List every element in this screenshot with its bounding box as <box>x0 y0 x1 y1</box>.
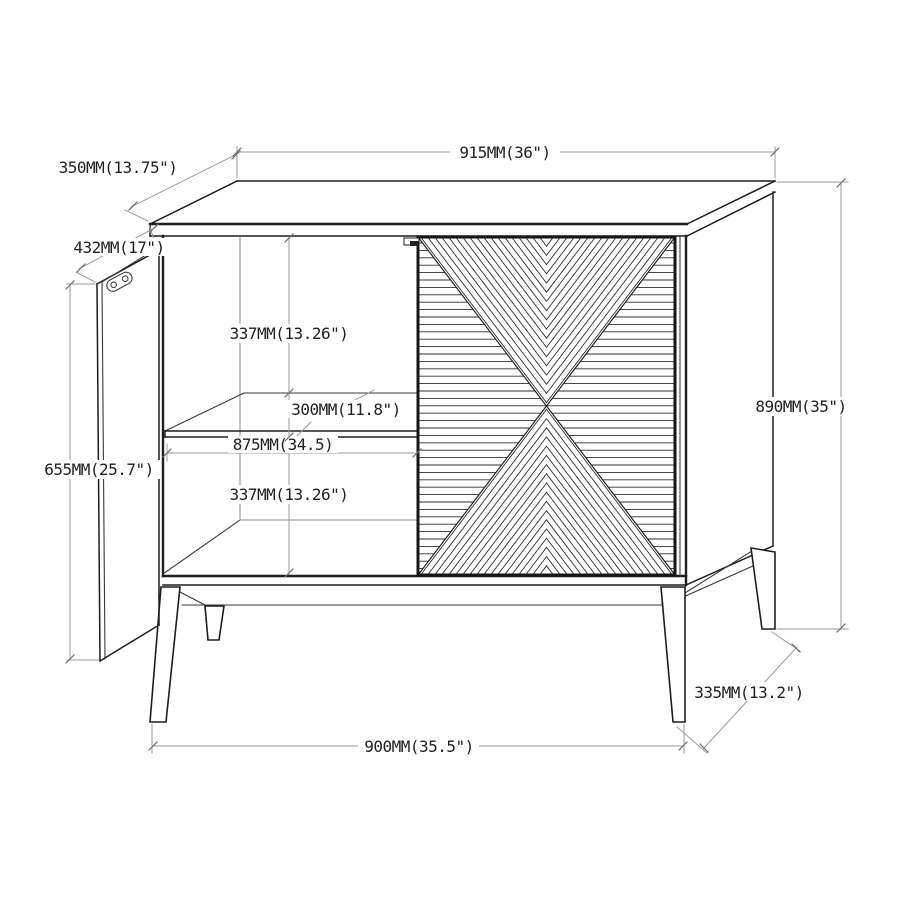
dimension-350: 350MM(13.75") <box>52 154 237 221</box>
cabinet-dimension-diagram: 915MM(36") 350MM(13.75") 432MM(17") 655M… <box>0 0 900 900</box>
open-left-door <box>97 247 159 661</box>
dimension-label-lower-compartment: 337MM(13.26") <box>230 485 349 504</box>
dimension-label-upper-compartment: 337MM(13.26") <box>230 324 349 343</box>
door-hinge <box>105 270 134 293</box>
dimension-875: 875MM(34.5) <box>167 435 418 461</box>
dimension-label-top-width: 915MM(36") <box>459 143 550 162</box>
dimension-label-door-height: 655MM(25.7") <box>44 460 154 479</box>
front-left-leg <box>150 587 180 722</box>
dimension-label-base-width: 900MM(35.5") <box>364 737 474 756</box>
cabinet-top-panel <box>150 181 775 236</box>
dimension-915: 915MM(36") <box>237 143 775 178</box>
dimension-335: 335MM(13.2") <box>677 632 809 753</box>
dimension-300-leader: 300MM(11.8") <box>286 390 406 441</box>
dimension-label-door-width: 432MM(17") <box>73 238 164 257</box>
dimension-label-overall-height: 890MM(35") <box>755 397 846 416</box>
dimension-label-interior-width: 875MM(34.5) <box>233 435 333 454</box>
dimension-label-shelf-depth: 300MM(11.8") <box>291 400 401 419</box>
dimension-label-base-depth: 335MM(13.2") <box>694 683 804 702</box>
rear-left-leg <box>205 606 224 640</box>
dimension-label-top-depth: 350MM(13.75") <box>59 158 178 177</box>
dimension-432: 432MM(17") <box>64 225 174 282</box>
door-hinge-bracket <box>404 238 419 246</box>
dimension-900: 900MM(35.5") <box>152 724 684 756</box>
right-door <box>404 237 675 575</box>
door-chevron-pattern-bottom <box>421 409 673 575</box>
front-right-leg <box>661 587 685 722</box>
technical-drawing-page: 915MM(36") 350MM(13.75") 432MM(17") 655M… <box>0 0 900 900</box>
rear-right-leg <box>751 548 775 629</box>
door-chevron-pattern-top <box>421 237 673 403</box>
